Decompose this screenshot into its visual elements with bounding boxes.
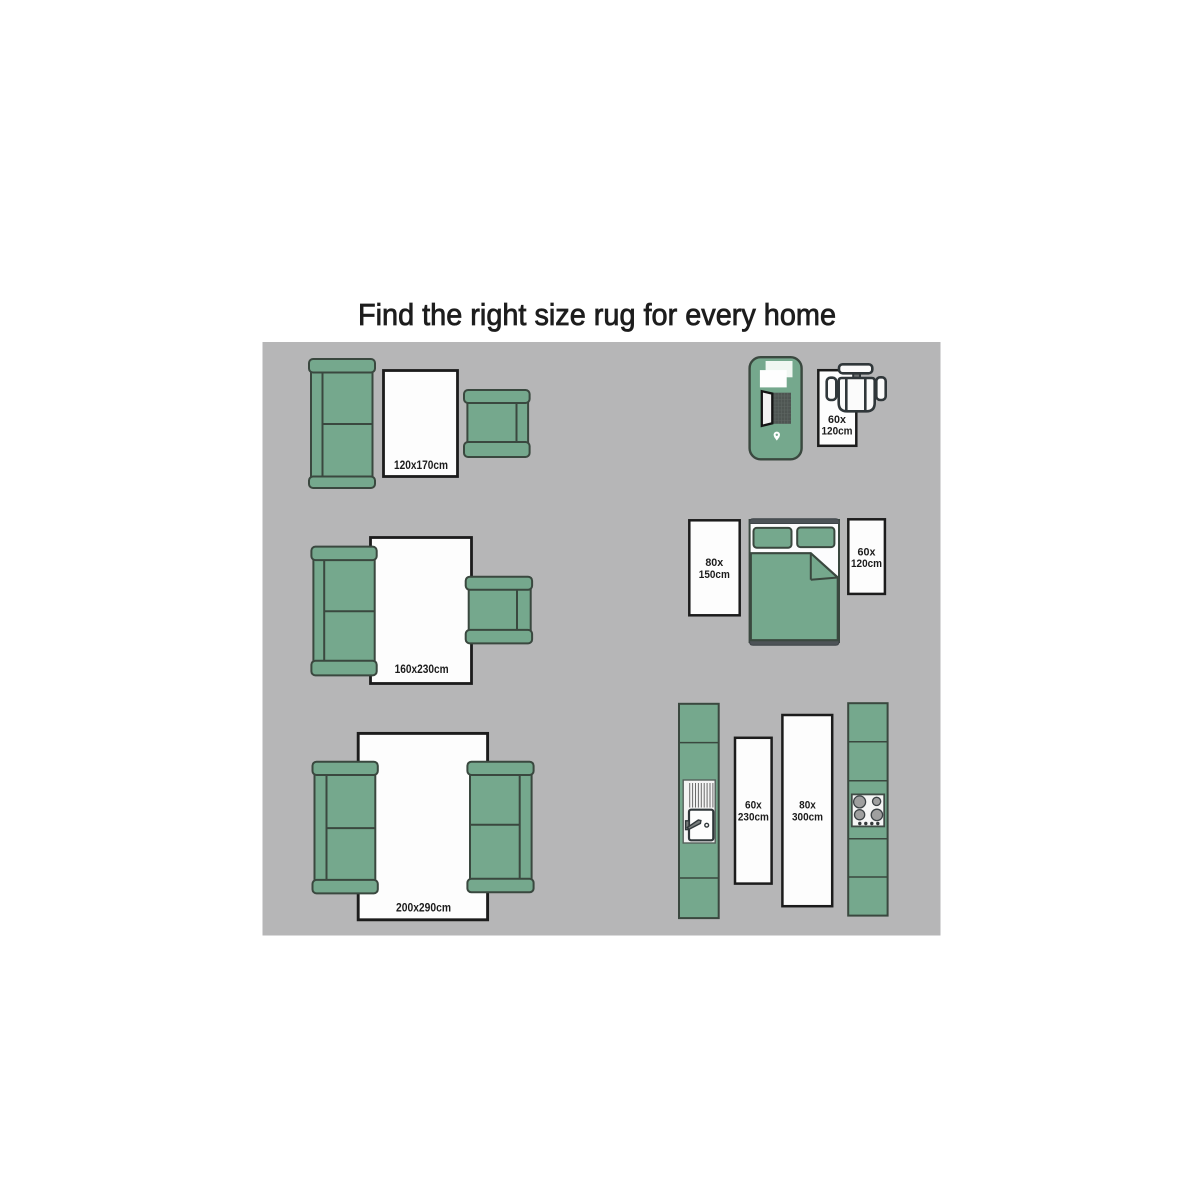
svg-text:120x170cm: 120x170cm xyxy=(394,458,448,472)
svg-text:200x290cm: 200x290cm xyxy=(396,901,451,915)
svg-text:160x230cm: 160x230cm xyxy=(395,662,449,676)
svg-text:150cm: 150cm xyxy=(699,569,730,581)
svg-text:60x: 60x xyxy=(828,414,846,426)
svg-text:80x: 80x xyxy=(799,799,816,811)
svg-text:60x: 60x xyxy=(858,547,876,559)
svg-text:120cm: 120cm xyxy=(851,558,882,570)
svg-text:300cm: 300cm xyxy=(792,811,823,823)
svg-text:60x: 60x xyxy=(745,799,762,811)
svg-text:120cm: 120cm xyxy=(822,426,853,438)
svg-text:80x: 80x xyxy=(705,557,723,569)
svg-text:Find the right size rug for ev: Find the right size rug for every home xyxy=(358,297,836,332)
svg-text:230cm: 230cm xyxy=(738,811,769,823)
